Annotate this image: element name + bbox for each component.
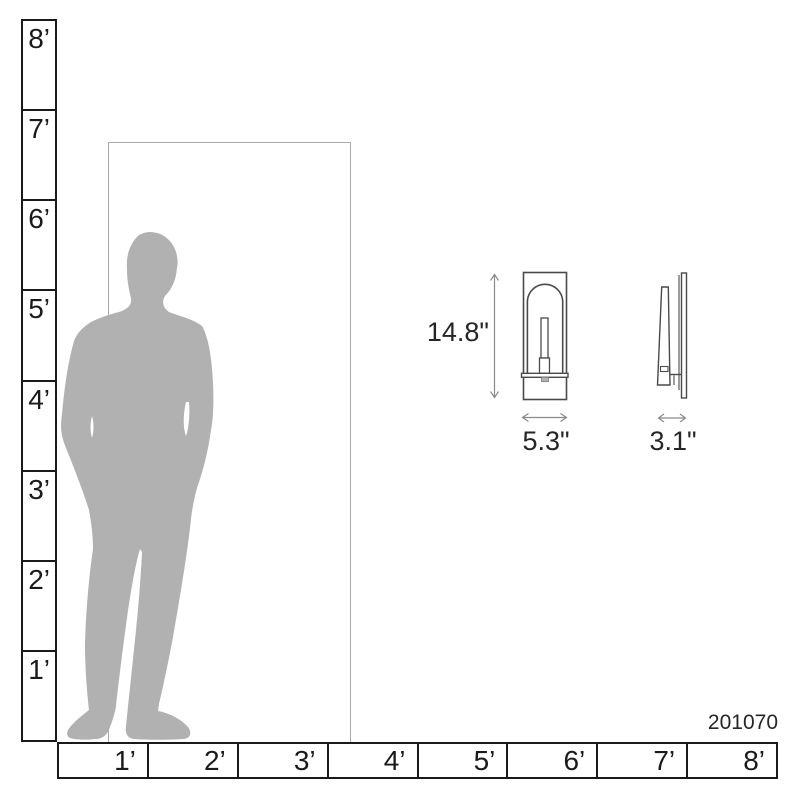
vertical-ruler-cell: 1’: [23, 652, 55, 740]
vertical-ruler-cell: 8’: [23, 21, 55, 111]
sconce-side-view: [658, 273, 687, 398]
width-dimension: [523, 414, 567, 422]
sconce-front-socket: [540, 358, 550, 373]
sconce-front-candle: [541, 318, 548, 358]
depth-dimension: [659, 414, 686, 422]
horizontal-ruler: 1’ 2’ 3’ 4’ 5’ 6’ 7’ 8’: [57, 742, 778, 779]
horizontal-ruler-cell: 7’: [598, 744, 688, 777]
horizontal-ruler-cell: 6’: [508, 744, 598, 777]
horizontal-ruler-cell: 1’: [59, 744, 149, 777]
width-dimension-label: 5.3": [522, 426, 569, 456]
vertical-ruler-cell: 6’: [23, 201, 55, 291]
horizontal-ruler-cell: 2’: [149, 744, 239, 777]
scale-diagram: 14.8" 5.3" 3.1" 201070 8’ 7’ 6’ 5’ 4’ 3’…: [0, 0, 800, 800]
diagram-artwork: 14.8" 5.3" 3.1" 201070: [0, 0, 800, 800]
depth-dimension-label: 3.1": [649, 426, 696, 456]
vertical-ruler-cell: 3’: [23, 472, 55, 562]
horizontal-ruler-cell: 5’: [419, 744, 509, 777]
sconce-front-shelf: [522, 373, 569, 377]
sconce-front-view: [522, 273, 569, 400]
sconce-side-backplate: [682, 273, 687, 398]
person-silhouette: [61, 232, 213, 740]
height-dimension: [491, 275, 499, 398]
horizontal-ruler-cell: 8’: [688, 744, 776, 777]
vertical-ruler-cell: 2’: [23, 562, 55, 652]
vertical-ruler-cell: 4’: [23, 382, 55, 472]
product-code: 201070: [708, 711, 778, 734]
vertical-ruler-cell: 5’: [23, 291, 55, 381]
horizontal-ruler-cell: 3’: [239, 744, 329, 777]
vertical-ruler: 8’ 7’ 6’ 5’ 4’ 3’ 2’ 1’: [21, 19, 57, 742]
vertical-ruler-cell: 7’: [23, 111, 55, 201]
height-dimension-label: 14.8": [427, 317, 489, 347]
horizontal-ruler-cell: 4’: [329, 744, 419, 777]
sconce-side-detail: [661, 367, 669, 372]
sconce-front-tab: [542, 377, 549, 381]
